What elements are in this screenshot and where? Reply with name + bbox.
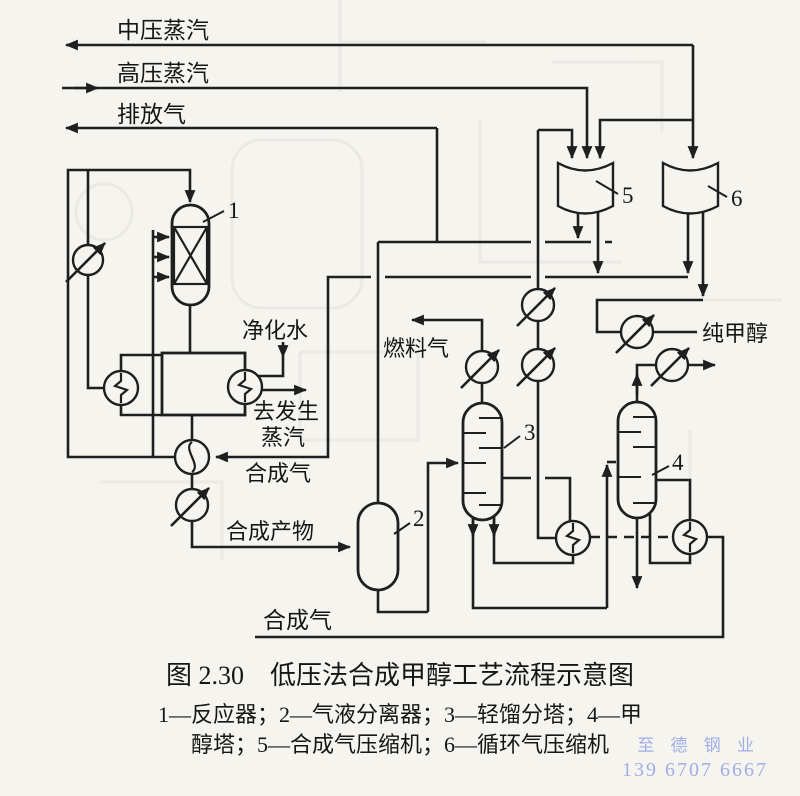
process-flow-diagram: 中压蒸汽 高压蒸汽 排放气 净化水 去发生 蒸汽 合成气 合成产物 燃料气 纯甲…: [0, 0, 800, 796]
stream-labels: 中压蒸汽 高压蒸汽 排放气 净化水 去发生 蒸汽 合成气 合成产物 燃料气 纯甲…: [117, 18, 768, 633]
methanol-product-valve: [651, 348, 689, 386]
separator-number: 2: [413, 506, 425, 531]
label-synthesis-product: 合成产物: [226, 519, 314, 544]
figure-caption: 图 2.30 低压法合成甲醇工艺流程示意图: [166, 661, 634, 690]
column4-reboiler: [673, 520, 707, 554]
label-fuel-gas: 燃料气: [383, 336, 449, 361]
pipe-riser-to-comp5: [538, 130, 572, 158]
label-vent-gas: 排放气: [117, 102, 186, 127]
letdown-valve: [171, 488, 209, 526]
methanol-cooler-valve: [616, 315, 654, 353]
reactor-number: 1: [228, 198, 240, 223]
label-to-steam-gen-1: 去发生: [253, 399, 319, 424]
pipe-column3-feed: [428, 463, 458, 612]
label-purified-water: 净化水: [242, 318, 308, 343]
pipe-separator-bottoms: [378, 590, 428, 612]
pipe-loop-valve-bottom: [88, 275, 104, 388]
methanol-column-number: 4: [672, 450, 684, 475]
riser-valve-lower: [517, 348, 555, 386]
watermark-phone: 139 6707 6667: [622, 759, 768, 781]
figure-legend-line2: 醇塔；5—合成气压缩机；6—循环气压缩机: [191, 732, 609, 757]
watermark: 至 德 钢 业 139 6707 6667: [622, 736, 768, 781]
label-pure-methanol: 纯甲醇: [702, 321, 768, 346]
light-ends-column: [463, 403, 502, 520]
scanned-textbook-figure: 中压蒸汽 高压蒸汽 排放气 净化水 去发生 蒸汽 合成气 合成产物 燃料气 纯甲…: [0, 0, 800, 796]
recycle-loop-valve: [66, 243, 105, 282]
pipe-column3-sidedraw: [502, 478, 570, 521]
column3-reboiler: [556, 521, 590, 555]
separator-vessel: [358, 503, 398, 590]
riser-valve-upper: [517, 288, 555, 326]
reactor-vessel: [172, 205, 209, 305]
fuel-gas-valve: [461, 350, 499, 388]
label-syngas-recycle: 合成气: [245, 461, 311, 486]
drum-circulation-exchanger: [104, 371, 138, 405]
syngas-compressor-symbol: [558, 163, 613, 214]
figure-caption-block: 图 2.30 低压法合成甲醇工艺流程示意图 1—反应器；2—气液分离器；3—轻馏…: [158, 661, 642, 757]
recycle-compressor-number: 6: [731, 186, 743, 211]
label-hp-steam: 高压蒸汽: [117, 61, 209, 86]
pipe-mp-steam-branch: [600, 120, 693, 158]
light-ends-column-number: 3: [524, 420, 536, 445]
recycle-compressor-symbol: [663, 163, 718, 214]
methanol-column: [618, 402, 656, 518]
label-mp-steam: 中压蒸汽: [117, 18, 209, 43]
label-syngas-feed: 合成气: [263, 608, 332, 633]
syngas-compressor-number: 5: [622, 183, 634, 208]
feed-effluent-interchanger: [175, 440, 209, 474]
label-to-steam-gen-2: 蒸汽: [261, 425, 305, 450]
equipment: [66, 163, 727, 590]
figure-legend-line1: 1—反应器；2—气液分离器；3—轻馏分塔；4—甲: [158, 702, 642, 727]
watermark-company: 至 德 钢 业: [637, 736, 760, 755]
methanol-column-shell: [618, 402, 656, 518]
